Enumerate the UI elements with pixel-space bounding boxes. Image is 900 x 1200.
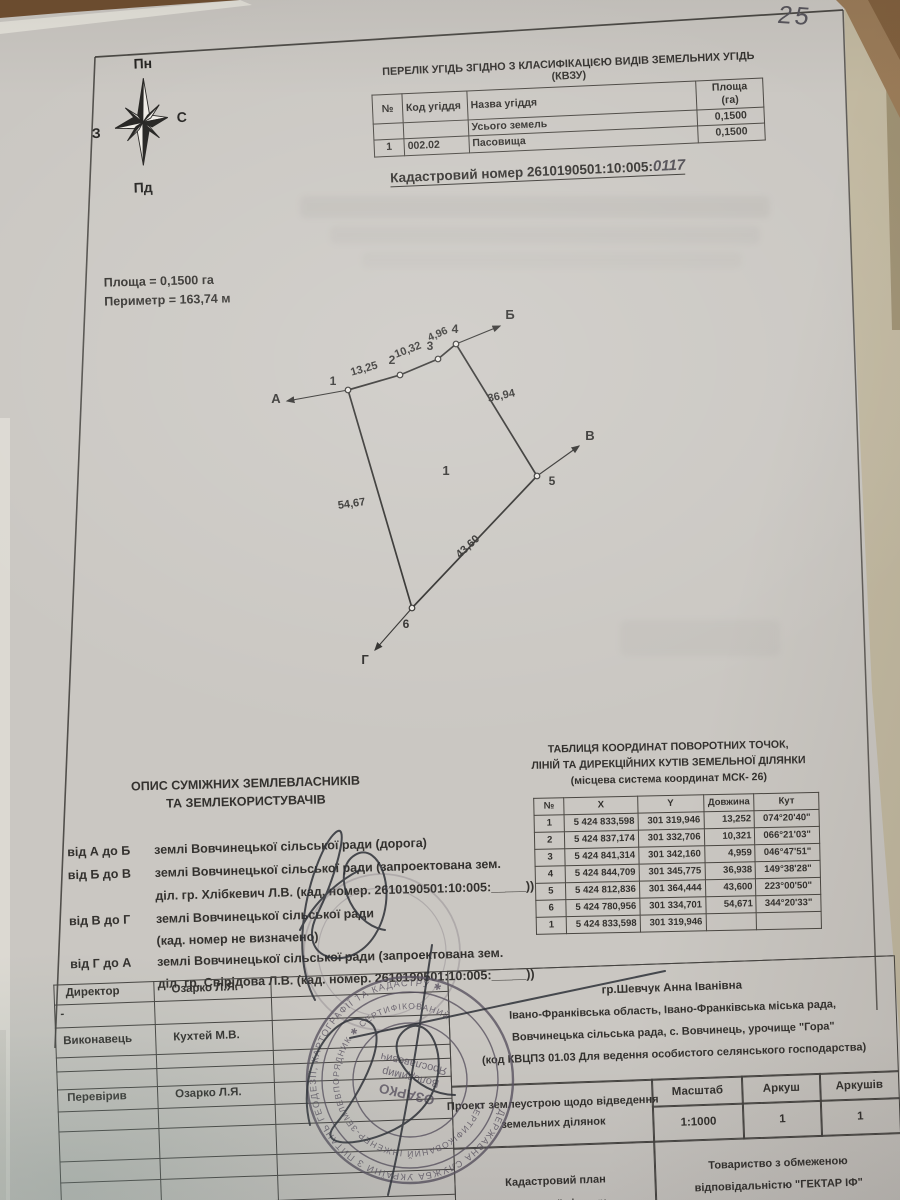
arrow-direction-v xyxy=(537,446,579,476)
pen-signatures xyxy=(255,795,695,1200)
handwritten-page-number: 25 xyxy=(775,1,814,32)
landuse-col-code: Код угіддя xyxy=(402,91,468,123)
compass-rose: Пн Пд З С xyxy=(69,43,234,208)
coordinates-table-title: ТАБЛИЦЯ КООРДИНАТ ПОВОРОТНИХ ТОЧОК, ЛІНІ… xyxy=(518,737,819,791)
neighbor-range: від Г до А xyxy=(70,956,132,972)
bleedthrough-smudge xyxy=(620,620,780,656)
segment-4-5-length: 36,94 xyxy=(487,387,517,405)
landuse-col-area: Площа (га) xyxy=(696,78,764,110)
compass-east-label: С xyxy=(176,109,187,125)
bleedthrough-smudge xyxy=(330,226,760,244)
parcel-info-block: Площа = 0,1500 га Периметр = 163,74 м xyxy=(104,272,231,308)
segment-2-3-length: 10,32 xyxy=(393,340,423,361)
point-1-label: 1 xyxy=(330,374,337,388)
sheet-value-cell: 1 xyxy=(742,1100,823,1140)
cadastral-number-handwritten: 0117 xyxy=(653,157,686,175)
neighbor-range: від Б до В xyxy=(68,867,131,883)
bleedthrough-smudge xyxy=(362,252,742,268)
parcel-area: Площа = 0,1500 га xyxy=(104,272,231,289)
arrow-direction-b xyxy=(456,326,500,344)
checker-label: Перевірив xyxy=(67,1090,127,1104)
landuse-block: ПЕРЕЛІК УГІДЬ ЗГІДНО З КЛАСИФІКАЦІЄЮ ВИД… xyxy=(370,49,770,157)
scanned-cadastral-plan-photo: 25 Пн Пд З xyxy=(0,0,900,1200)
point-5-label: 5 xyxy=(549,474,556,488)
bleedthrough-smudge xyxy=(300,196,770,218)
compass-west-label: З xyxy=(92,125,102,141)
point-4-label: 4 xyxy=(452,322,459,336)
director-name: Озарко Л.Я. xyxy=(171,981,238,995)
direction-b-label: Б xyxy=(505,307,514,322)
director-label: Директор xyxy=(65,985,119,999)
compass-south-label: Пд xyxy=(133,179,153,196)
executor-label: Виконавець xyxy=(63,1033,132,1047)
dash-mark: - xyxy=(60,1008,64,1020)
arrow-direction-a xyxy=(287,390,348,401)
checker-name: Озарко Л.Я. xyxy=(175,1086,242,1100)
executor-name: Кухтей М.В. xyxy=(173,1029,240,1043)
compass-north-label: Пн xyxy=(133,55,152,72)
point-6-label: 6 xyxy=(403,617,410,631)
landuse-col-num: № xyxy=(372,94,403,125)
direction-v-label: В xyxy=(585,428,594,443)
direction-a-label: А xyxy=(271,391,281,406)
parcel-number-label: 1 xyxy=(442,463,449,478)
direction-g-label: Г xyxy=(361,652,369,667)
segment-6-1-length: 54,67 xyxy=(337,496,366,512)
neighbor-range: від В до Г xyxy=(69,913,131,929)
parcel-diagram: 1 2 3 4 5 6 1 А Б В Г 13,25 10,32 4,96 3… xyxy=(253,293,633,683)
neighbor-range: від А до Б xyxy=(67,844,130,860)
segment-1-2-length: 13,25 xyxy=(349,360,379,379)
sheets-value-cell: 1 xyxy=(820,1097,900,1137)
segment-3-4-length: 4,96 xyxy=(426,325,450,344)
segment-5-6-length: 43,60 xyxy=(454,533,482,561)
